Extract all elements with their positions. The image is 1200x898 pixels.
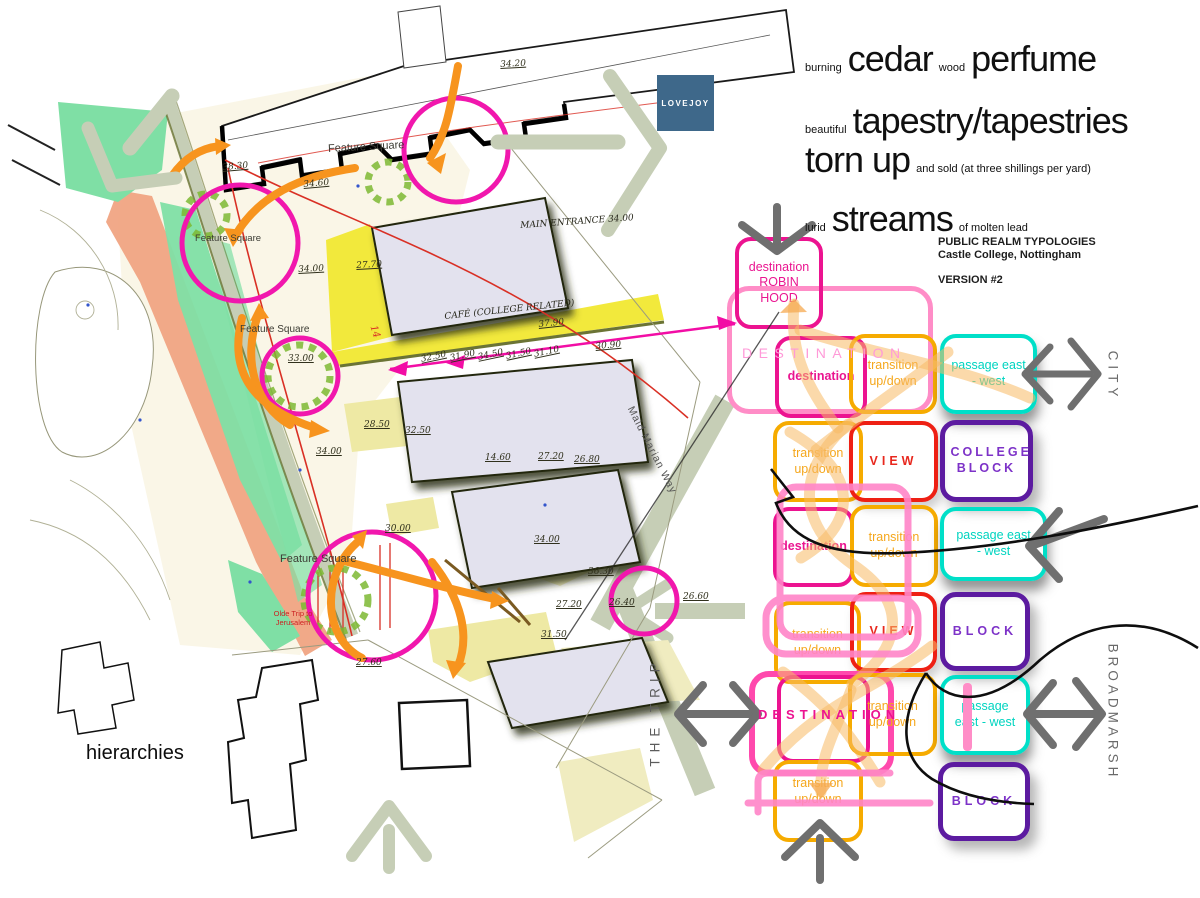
lovejoy-logo-label: LOVEJOY	[661, 99, 709, 108]
olde-trip-note: Olde Trip to Jerusalem	[266, 610, 320, 627]
feature-square-label: Feature Square	[240, 324, 310, 335]
box-view-r2: VIEW	[849, 421, 938, 502]
project-version: VERSION #2	[938, 274, 1096, 287]
box-transition-r3: transition up/down	[850, 505, 938, 587]
destination-main-label: DESTINATION	[758, 707, 900, 722]
box-view-r4: VIEW	[850, 592, 937, 672]
spot-level: 27.60	[356, 658, 382, 668]
spot-level: 36.30	[588, 567, 614, 577]
poem-line-4: lurid streams of molten lead	[805, 198, 1028, 240]
pink-route-stripe	[963, 683, 972, 751]
spot-level: 27.70	[356, 260, 382, 271]
poem-word: wood	[939, 62, 965, 74]
caption-hierarchies: hierarchies	[86, 742, 184, 765]
spot-level: 27.20	[538, 452, 564, 462]
box-destination-robin-hood: destination ROBIN HOOD	[735, 237, 823, 329]
box-college-block: COLLEGE BLOCK	[940, 420, 1033, 502]
spot-level: 14.60	[485, 453, 511, 463]
robin-hood-label: destination ROBIN HOOD	[739, 260, 819, 307]
poem-word: lurid	[805, 222, 826, 234]
spot-level: 30.00	[385, 524, 411, 534]
spot-level: 33.00	[288, 354, 314, 364]
spot-level: 32.50	[405, 426, 431, 436]
spot-level: 26.80	[574, 455, 600, 465]
spot-level: 27.20	[556, 600, 582, 610]
project-subtitle: Castle College, Nottingham	[938, 249, 1096, 262]
project-title: PUBLIC REALM TYPOLOGIES	[938, 236, 1096, 249]
spot-level: 28.50	[364, 420, 390, 430]
label-the-trip: THE TRIP	[648, 657, 663, 766]
poem-word: burning	[805, 62, 842, 74]
spot-level: 34.20	[500, 59, 526, 70]
poem-word: beautiful	[805, 124, 847, 136]
poem-word: cedar	[848, 38, 933, 80]
poem-line-3: torn up and sold (at three shillings per…	[805, 139, 1091, 181]
ghost-destination-label: DESTINATION	[742, 345, 907, 361]
label-city: CITY	[1106, 351, 1121, 402]
poem-word: torn up	[805, 139, 910, 181]
poem-line-1: burning cedar wood perfume	[805, 38, 1096, 80]
poem-word: and sold (at three shillings per yard)	[916, 163, 1091, 175]
label-broadmarsh: BROADMARSH	[1106, 644, 1121, 781]
spot-level: 26.40	[609, 598, 635, 608]
poem-word: perfume	[971, 38, 1096, 80]
spot-level: 34.00	[534, 535, 560, 545]
poster: destination ROBIN HOOD destination trans…	[0, 0, 1200, 898]
poem-line-2: beautiful tapestry/tapestries	[805, 100, 1128, 142]
box-transition-r6: transition up/down	[773, 760, 863, 842]
spot-level: 34.00	[316, 447, 342, 457]
box-passage-r1: passage east - west	[940, 334, 1037, 414]
box-destination-r3: destination	[773, 507, 854, 587]
box-block-r4: BLOCK	[940, 592, 1030, 671]
box-passage-r5: passage east - west	[940, 675, 1030, 755]
box-passage-r3: passage east - west	[940, 507, 1047, 581]
box-block-r6: BLOCK	[938, 762, 1030, 841]
poem-word: tapestry/tapestries	[853, 100, 1128, 142]
feature-square-label: Feature Square	[280, 553, 356, 565]
poem-word: of molten lead	[959, 222, 1028, 234]
lovejoy-logo: LOVEJOY	[657, 75, 714, 131]
spot-level: 34.00	[298, 264, 324, 275]
poem-word: streams	[832, 198, 953, 240]
feature-square-label: Feature Square	[195, 233, 261, 244]
spot-level: 31.50	[541, 630, 567, 640]
project-title-block: PUBLIC REALM TYPOLOGIES Castle College, …	[938, 236, 1096, 287]
spot-level: 26.60	[683, 592, 709, 602]
